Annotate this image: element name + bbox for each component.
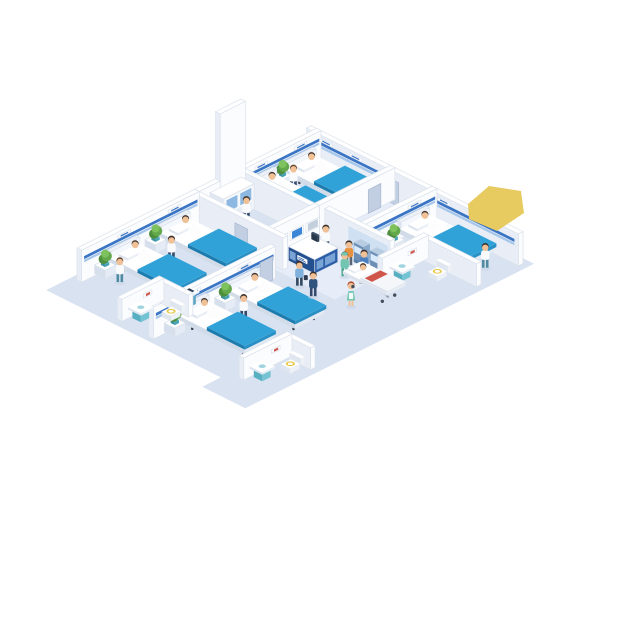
wall-se	[518, 232, 523, 266]
patient-head	[422, 212, 429, 219]
gurney-wheel	[351, 285, 354, 288]
patient-torso	[188, 225, 200, 235]
patient-head	[252, 274, 259, 281]
toilet-lid	[435, 270, 440, 273]
gurney-wheel	[393, 293, 396, 296]
patient-head	[132, 242, 139, 249]
person-head	[310, 273, 316, 279]
person-torso	[481, 251, 489, 260]
person-torso	[240, 302, 248, 311]
patient-head	[201, 299, 208, 306]
patient-head	[182, 216, 189, 223]
person-leg	[117, 273, 120, 282]
person-leg	[296, 277, 299, 286]
person-shadow	[346, 305, 356, 309]
person-leg	[310, 288, 313, 297]
person-torso	[341, 259, 349, 268]
person-leg	[352, 301, 354, 307]
wall-se	[311, 346, 316, 370]
desk-monitor-se	[318, 235, 320, 243]
toilet-lid	[288, 362, 293, 365]
scene-canvas	[0, 0, 640, 640]
bag	[304, 275, 308, 280]
person-torso	[167, 243, 175, 252]
person-shadow	[308, 295, 318, 299]
plant-foliage	[390, 224, 398, 232]
patient-torso	[207, 308, 219, 318]
wall-sw	[77, 248, 82, 282]
person-head	[323, 226, 329, 232]
patient-torso	[138, 251, 150, 261]
person-leg	[486, 259, 489, 268]
plant-foliage	[279, 160, 287, 168]
person-head	[117, 259, 123, 265]
patient-torso	[257, 283, 269, 293]
person-torso	[116, 265, 124, 274]
person-head	[296, 263, 302, 269]
person-shadow	[115, 281, 125, 285]
wall-sw	[239, 356, 244, 380]
patient-torso	[428, 221, 440, 231]
plant-foliage	[101, 250, 109, 258]
person-head	[168, 237, 174, 243]
wall-se	[283, 236, 288, 270]
person-leg	[350, 256, 353, 265]
person-torso	[309, 279, 317, 288]
patient-torso	[314, 162, 326, 172]
person-leg	[121, 273, 124, 282]
person-head	[241, 296, 247, 302]
person-leg	[349, 301, 351, 307]
plant-foliage	[152, 224, 160, 232]
wall-se	[476, 261, 481, 286]
person-shadow	[480, 267, 490, 271]
person-head	[243, 198, 249, 204]
person-leg	[300, 277, 303, 286]
wall-sw	[117, 297, 122, 321]
person-head	[290, 166, 296, 172]
wall-se	[188, 293, 193, 317]
person-torso	[242, 204, 250, 213]
person-shadow	[294, 285, 304, 289]
hospital-isometric-illustration: Isometric cutaway illustration of a hosp…	[0, 0, 640, 640]
person-torso	[289, 172, 297, 181]
person-torso	[295, 268, 303, 277]
gurney-patient-head	[360, 264, 366, 270]
gurney-wheel	[381, 300, 384, 303]
scrub-cap	[342, 252, 348, 256]
plant-foliage	[221, 282, 229, 290]
nurse-apron	[349, 293, 353, 299]
person-leg	[314, 288, 317, 297]
person-head	[346, 242, 352, 248]
person-leg	[482, 259, 485, 268]
person-head	[482, 245, 488, 251]
sink-water	[137, 305, 144, 309]
toilet-lid	[168, 310, 173, 313]
sink-water	[398, 264, 405, 268]
patient-head	[308, 153, 315, 160]
person-head	[361, 251, 367, 257]
sink-water	[259, 364, 266, 368]
patient-head	[269, 173, 276, 180]
